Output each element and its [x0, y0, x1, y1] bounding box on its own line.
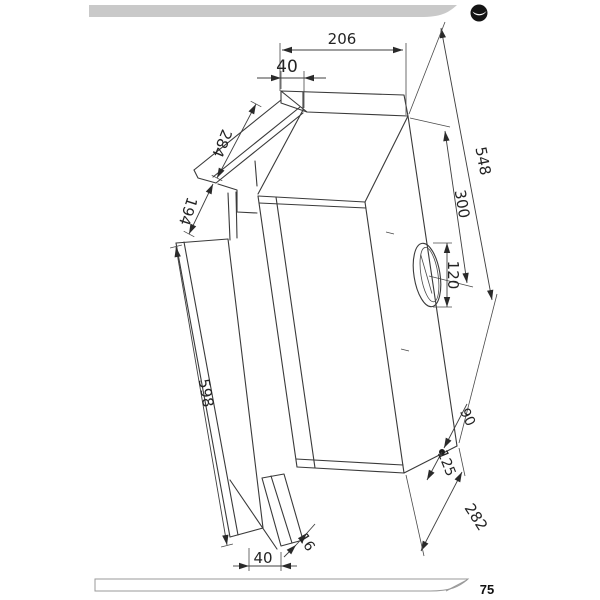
dim-duct-top-width: 206 — [328, 30, 357, 48]
dim-body-height: 548 — [471, 145, 494, 177]
hood-body-outline — [176, 91, 457, 549]
manual-page: 206 40 284 194 598 548 300 120 90 125 28… — [0, 0, 600, 600]
page-number: 75 — [480, 582, 494, 597]
dim-duct-front-depth: 40 — [276, 57, 298, 77]
dim-front-bracket-depth: 194 — [175, 195, 201, 228]
header-swoosh — [89, 5, 488, 22]
footer-swoosh: 75 — [95, 579, 494, 597]
header-bar — [89, 5, 457, 17]
exhaust-outlet — [409, 241, 445, 308]
footer-band — [95, 579, 468, 591]
dim-bottom-front-width: 40 — [253, 549, 272, 567]
hood-dimension-drawing: 206 40 284 194 598 548 300 120 90 125 28… — [0, 0, 600, 600]
dim-keyhole-offset-back: 90 — [456, 406, 478, 429]
dim-front-panel-height: 598 — [195, 377, 218, 408]
dim-bottom-lip-offset: 16 — [295, 531, 318, 555]
dim-outlet-center-from-top: 300 — [451, 188, 474, 219]
logo-icon — [471, 5, 488, 22]
dim-outlet-diameter: 120 — [444, 261, 462, 290]
dimension-lines — [170, 22, 497, 571]
dim-body-bottom-depth: 282 — [461, 500, 492, 534]
dim-keyhole-offset-bottom: 125 — [434, 448, 459, 479]
